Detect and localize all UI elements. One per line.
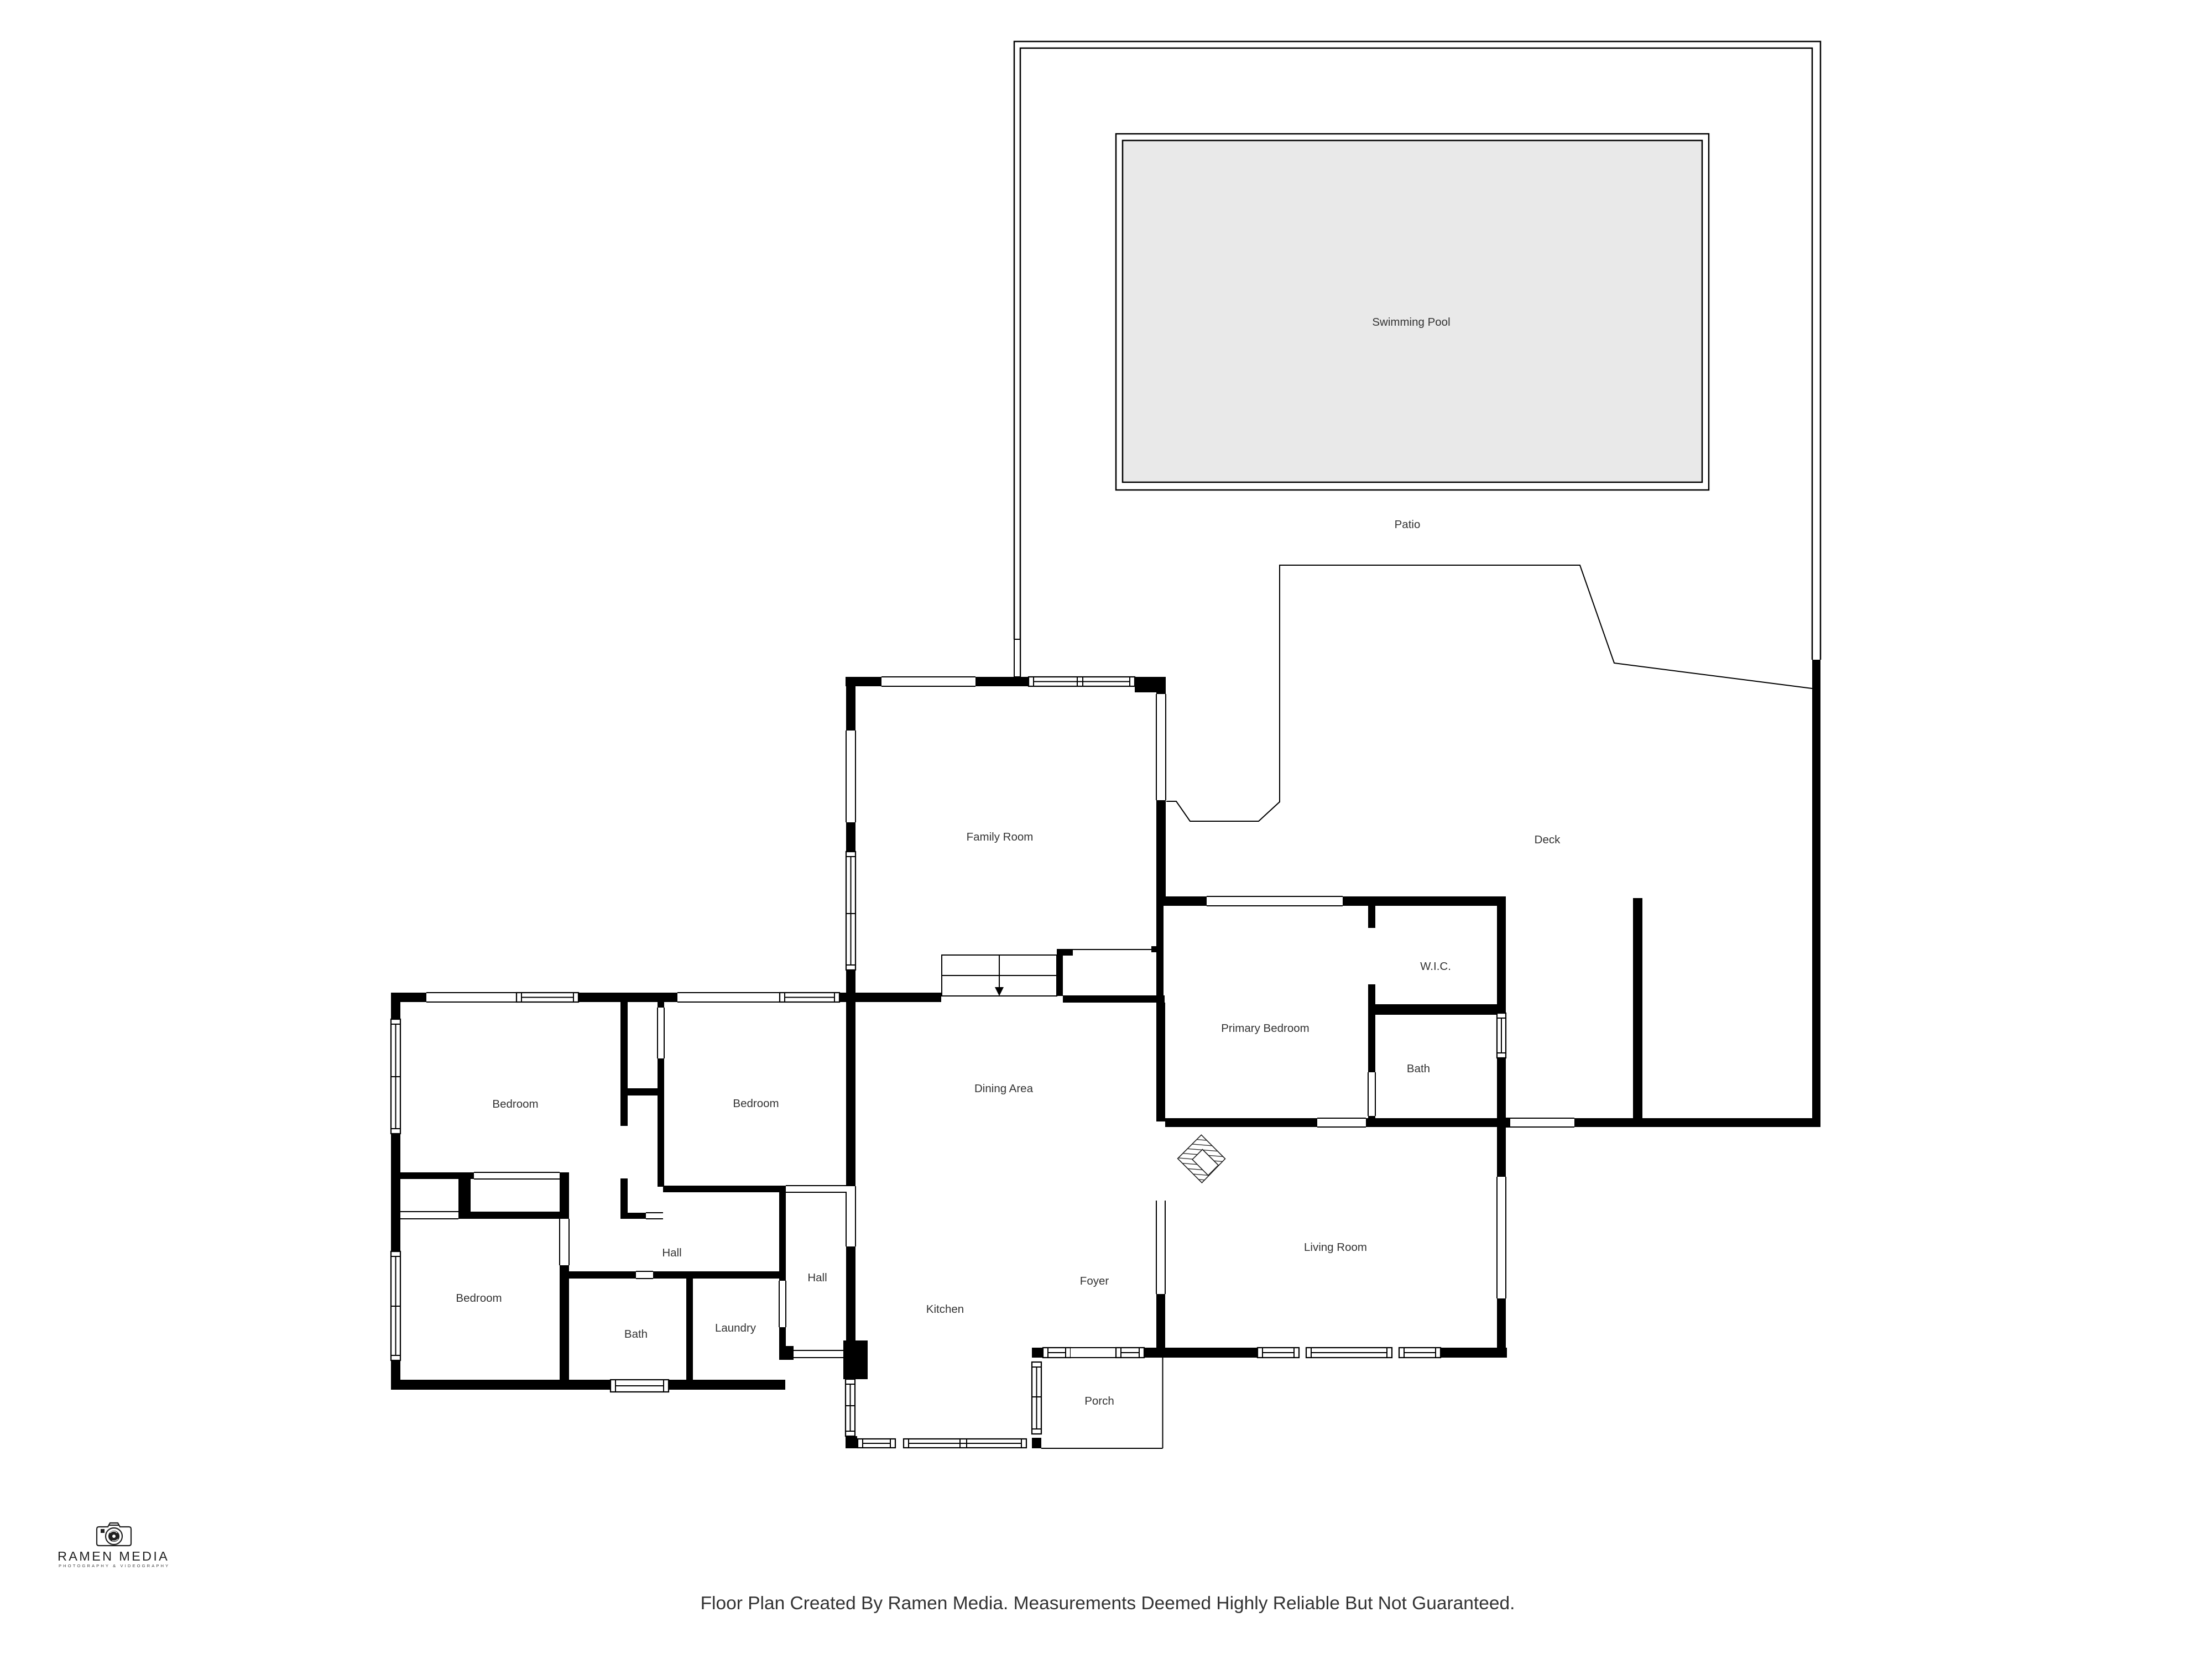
- svg-text:Patio: Patio: [1395, 518, 1421, 531]
- svg-text:Porch: Porch: [1084, 1395, 1114, 1407]
- svg-text:Hall: Hall: [662, 1246, 681, 1259]
- svg-text:Bedroom: Bedroom: [456, 1292, 502, 1305]
- svg-text:Bedroom: Bedroom: [733, 1097, 779, 1110]
- svg-text:Primary Bedroom: Primary Bedroom: [1221, 1022, 1310, 1035]
- svg-text:W.I.C.: W.I.C.: [1420, 960, 1451, 973]
- svg-text:Kitchen: Kitchen: [926, 1303, 964, 1316]
- svg-text:Living Room: Living Room: [1304, 1241, 1367, 1254]
- svg-text:Bedroom: Bedroom: [492, 1098, 538, 1110]
- svg-text:Hall: Hall: [807, 1271, 827, 1284]
- svg-text:PHOTOGRAPHY & VIDEOGRAPHY: PHOTOGRAPHY & VIDEOGRAPHY: [59, 1563, 170, 1568]
- svg-text:Family Room: Family Room: [967, 831, 1034, 843]
- svg-text:Bath: Bath: [624, 1328, 648, 1340]
- svg-text:Bath: Bath: [1407, 1062, 1430, 1075]
- svg-text:Laundry: Laundry: [715, 1322, 757, 1334]
- svg-text:RAMEN MEDIA: RAMEN MEDIA: [58, 1549, 169, 1563]
- svg-text:Dining Area: Dining Area: [974, 1082, 1034, 1095]
- svg-text:Deck: Deck: [1535, 833, 1561, 846]
- svg-text:Swimming Pool: Swimming Pool: [1372, 316, 1450, 328]
- svg-text:Floor Plan Created By Ramen Me: Floor Plan Created By Ramen Media. Measu…: [701, 1593, 1515, 1614]
- svg-text:Foyer: Foyer: [1080, 1275, 1109, 1287]
